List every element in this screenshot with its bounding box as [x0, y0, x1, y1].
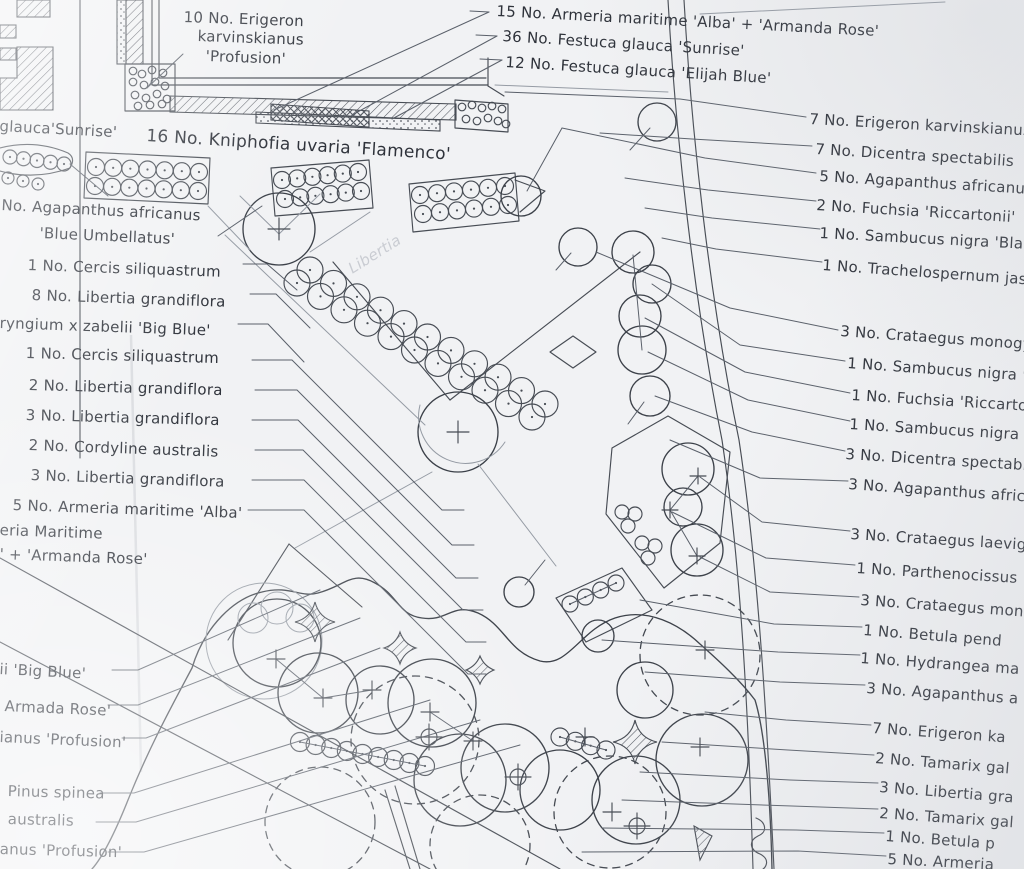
plant-label: 1 No. Cercis siliquastrum [26, 344, 220, 367]
plant-label: ianus 'Profusion' [0, 728, 127, 752]
plant-label: 3 No. Libertia grandiflora [30, 466, 225, 491]
plant-label: eria Maritime [0, 521, 103, 543]
plant-label: Libertia [345, 231, 404, 277]
plant-label: 3 No. Crataegus laevig [850, 525, 1024, 554]
plant-label: ryngium x zabelii 'Big Blue' [0, 314, 211, 339]
plant-labels-layer: 15 No. Armeria maritime 'Alba' + 'Armand… [0, 0, 1024, 869]
plant-label: 1 No. Sambucus nigra ' [847, 354, 1024, 384]
plant-label: No. Agapanthus africanus [1, 196, 201, 224]
plant-label: 'Profusion' [205, 47, 286, 68]
plant-label: 7 No. Erigeron karvinskianus [809, 110, 1024, 140]
plant-label: glauca'Sunrise' [0, 117, 118, 141]
plant-label: 3 No. Agapanthus afric [848, 475, 1024, 505]
plant-label: 8 No. Libertia grandiflora [31, 286, 226, 311]
plant-label: 5 No. Agapanthus africanus [819, 167, 1024, 198]
plant-label: 5 No. Armeria [887, 850, 995, 869]
plant-label: 1 No. Sambucus nigra 'Bla [819, 224, 1024, 253]
plant-label: ' + 'Armanda Rose' [0, 545, 148, 568]
plant-label: 1 No. Parthenocissus [856, 559, 1018, 587]
plant-label: anus 'Profusion' [0, 840, 122, 861]
plant-label: australis [8, 810, 75, 830]
plant-label: 5 No. Armeria maritime 'Alba' [12, 496, 242, 522]
plant-label: ii 'Big Blue' [0, 660, 86, 683]
plant-label: 2 No. Cordyline australis [28, 436, 218, 461]
plant-label: 3 No. Crataegus monogy [840, 322, 1024, 353]
plant-label: 2 No. Tamarix gal [875, 749, 1011, 778]
plant-label: 1 No. Betula pend [863, 621, 1003, 650]
plant-label: karvinskianus [197, 27, 304, 49]
plant-label: 2 No. Fuchsia 'Riccartonii' [816, 196, 1016, 226]
plant-label: 1 No. Sambucus nigra ' [849, 415, 1024, 444]
plant-label: 16 No. Kniphofia uvaria 'Flamenco' [146, 126, 452, 165]
plant-label: 3 No. Libertia gra [879, 778, 1015, 807]
plant-label: 7 No. Erigeron ka [872, 719, 1007, 746]
plant-label: Pinus spinea [8, 782, 105, 803]
planting-plan-sheet: 15 No. Armeria maritime 'Alba' + 'Armand… [0, 0, 1024, 869]
plant-label: 'Blue Umbellatus' [39, 224, 175, 248]
plant-label: 7 No. Dicentra spectabilis [815, 140, 1015, 170]
plant-label: 3 No. Libertia grandiflora [26, 406, 220, 429]
plant-label: 2 No. Libertia grandiflora [29, 376, 223, 399]
plant-label: Armada Rose' [4, 697, 111, 720]
plant-label: 1 No. Cercis siliquastrum [27, 256, 221, 281]
plant-label: 1 No. Hydrangea ma [860, 649, 1020, 678]
plant-label: 3 No. Dicentra spectabil [845, 445, 1024, 474]
plant-label: 1 No. Fuchsia 'Riccartoni [851, 386, 1024, 416]
plant-label: 3 No. Agapanthus a [866, 679, 1019, 708]
plant-label: 3 No. Crataegus mon [860, 591, 1024, 620]
plant-label: 1 No. Betula p [885, 827, 996, 853]
plant-label: 1 No. Trachelospernum jas [822, 256, 1024, 288]
